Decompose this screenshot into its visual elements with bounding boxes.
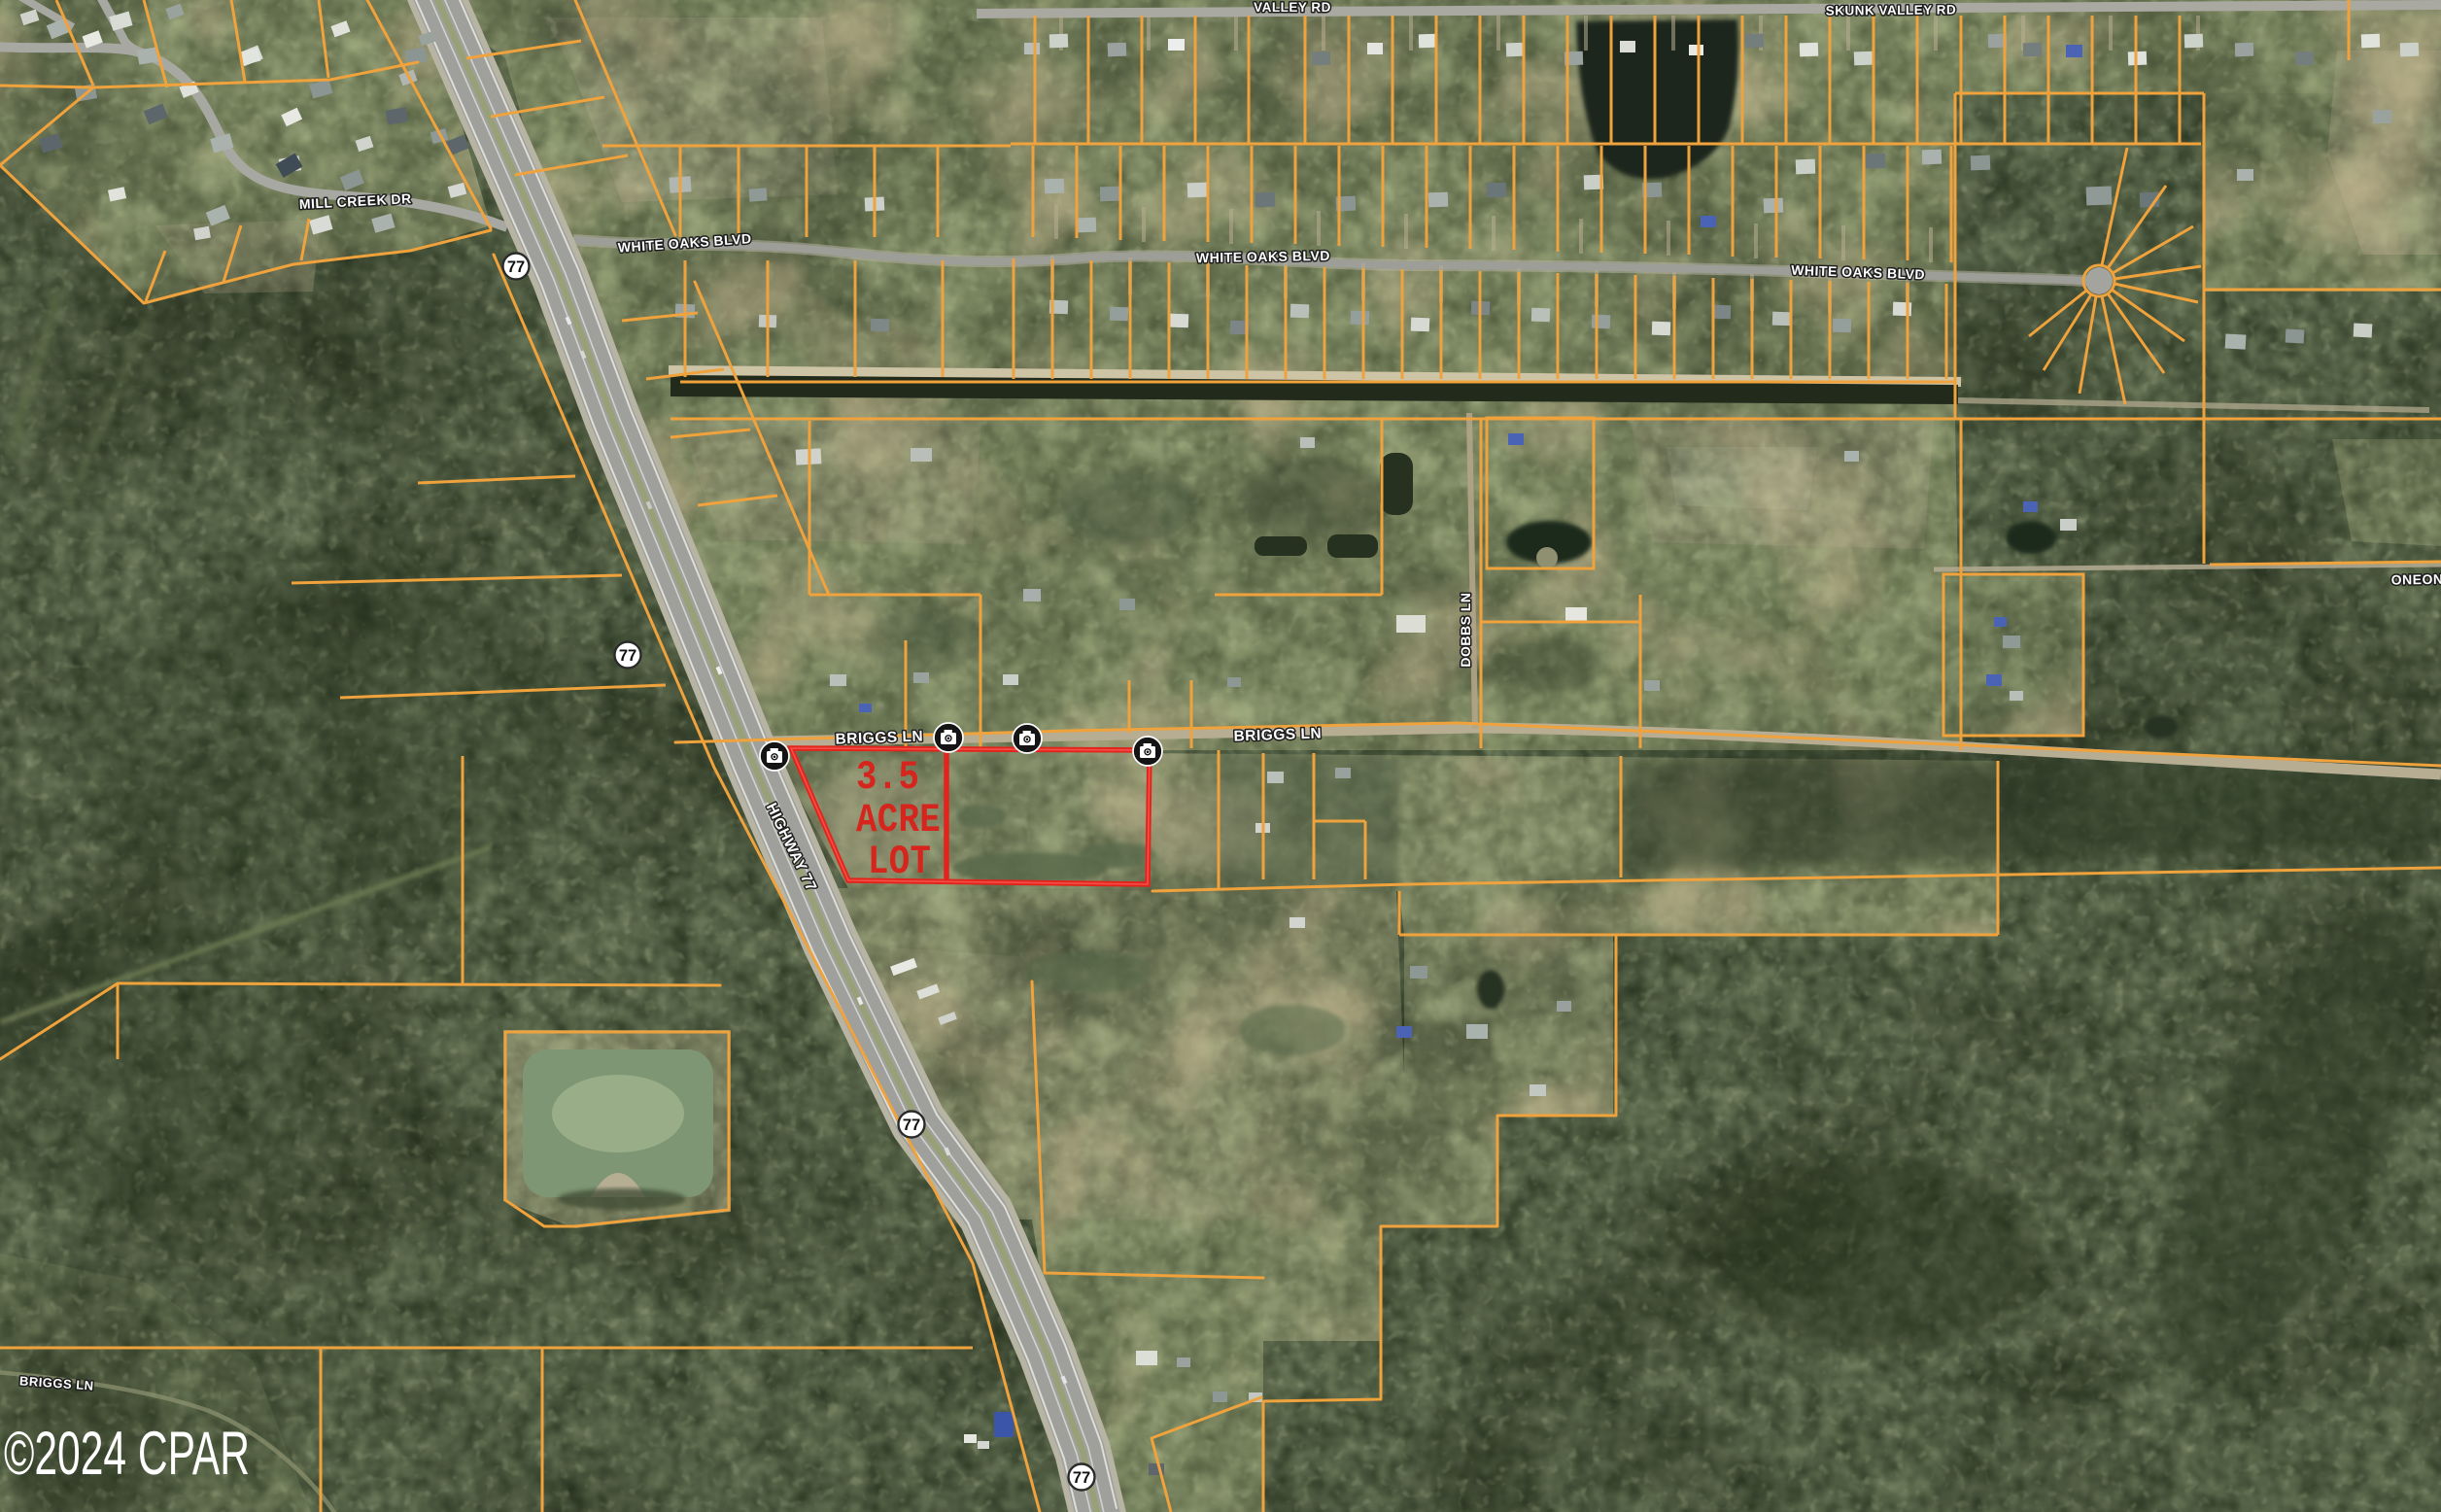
svg-text:DOBBS LN: DOBBS LN (1458, 592, 1473, 667)
svg-text:77: 77 (507, 258, 525, 276)
svg-text:BRIGGS LN: BRIGGS LN (1233, 725, 1322, 744)
svg-text:77: 77 (1073, 1469, 1090, 1487)
svg-text:77: 77 (619, 647, 636, 665)
svg-text:SKUNK VALLEY RD: SKUNK VALLEY RD (1826, 2, 1957, 17)
svg-text:77: 77 (903, 1117, 920, 1134)
svg-text:BRIGGS LN: BRIGGS LN (835, 728, 923, 747)
svg-text:ACRE: ACRE (856, 798, 941, 843)
svg-text:©2024 CPAR: ©2024 CPAR (4, 1420, 250, 1488)
svg-text:WHITE OAKS BLVD: WHITE OAKS BLVD (1196, 248, 1330, 265)
svg-text:VALLEY RD: VALLEY RD (1254, 0, 1331, 15)
svg-text:3.5: 3.5 (856, 755, 919, 801)
svg-text:ONEONTA: ONEONTA (2391, 570, 2441, 587)
svg-text:LOT: LOT (868, 840, 931, 885)
